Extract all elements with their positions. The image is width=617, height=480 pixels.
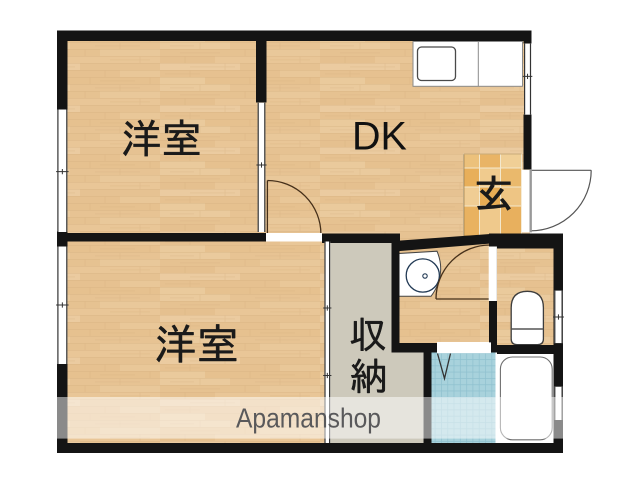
svg-text:DK: DK [352, 115, 407, 159]
svg-text:Apamanshop: Apamanshop [236, 403, 381, 434]
